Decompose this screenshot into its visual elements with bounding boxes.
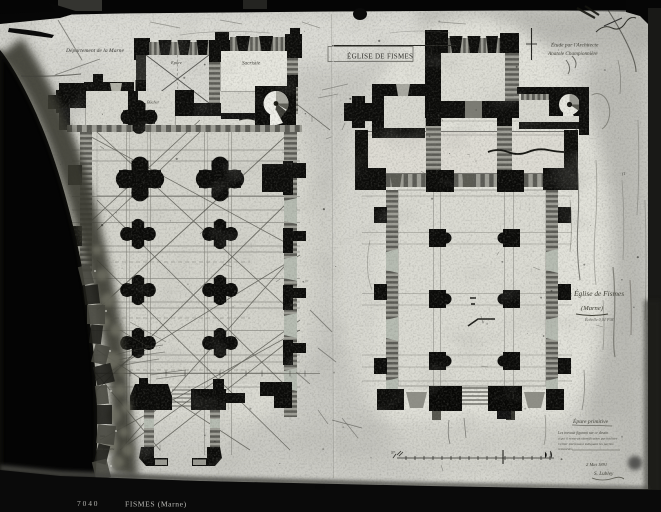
- svg-text:limite querelle: limite querelle: [96, 447, 115, 451]
- svg-text:FISMES (Marne): FISMES (Marne): [125, 500, 187, 509]
- svg-text:7040: 7040: [77, 499, 99, 508]
- svg-text:mm: mm: [100, 434, 105, 438]
